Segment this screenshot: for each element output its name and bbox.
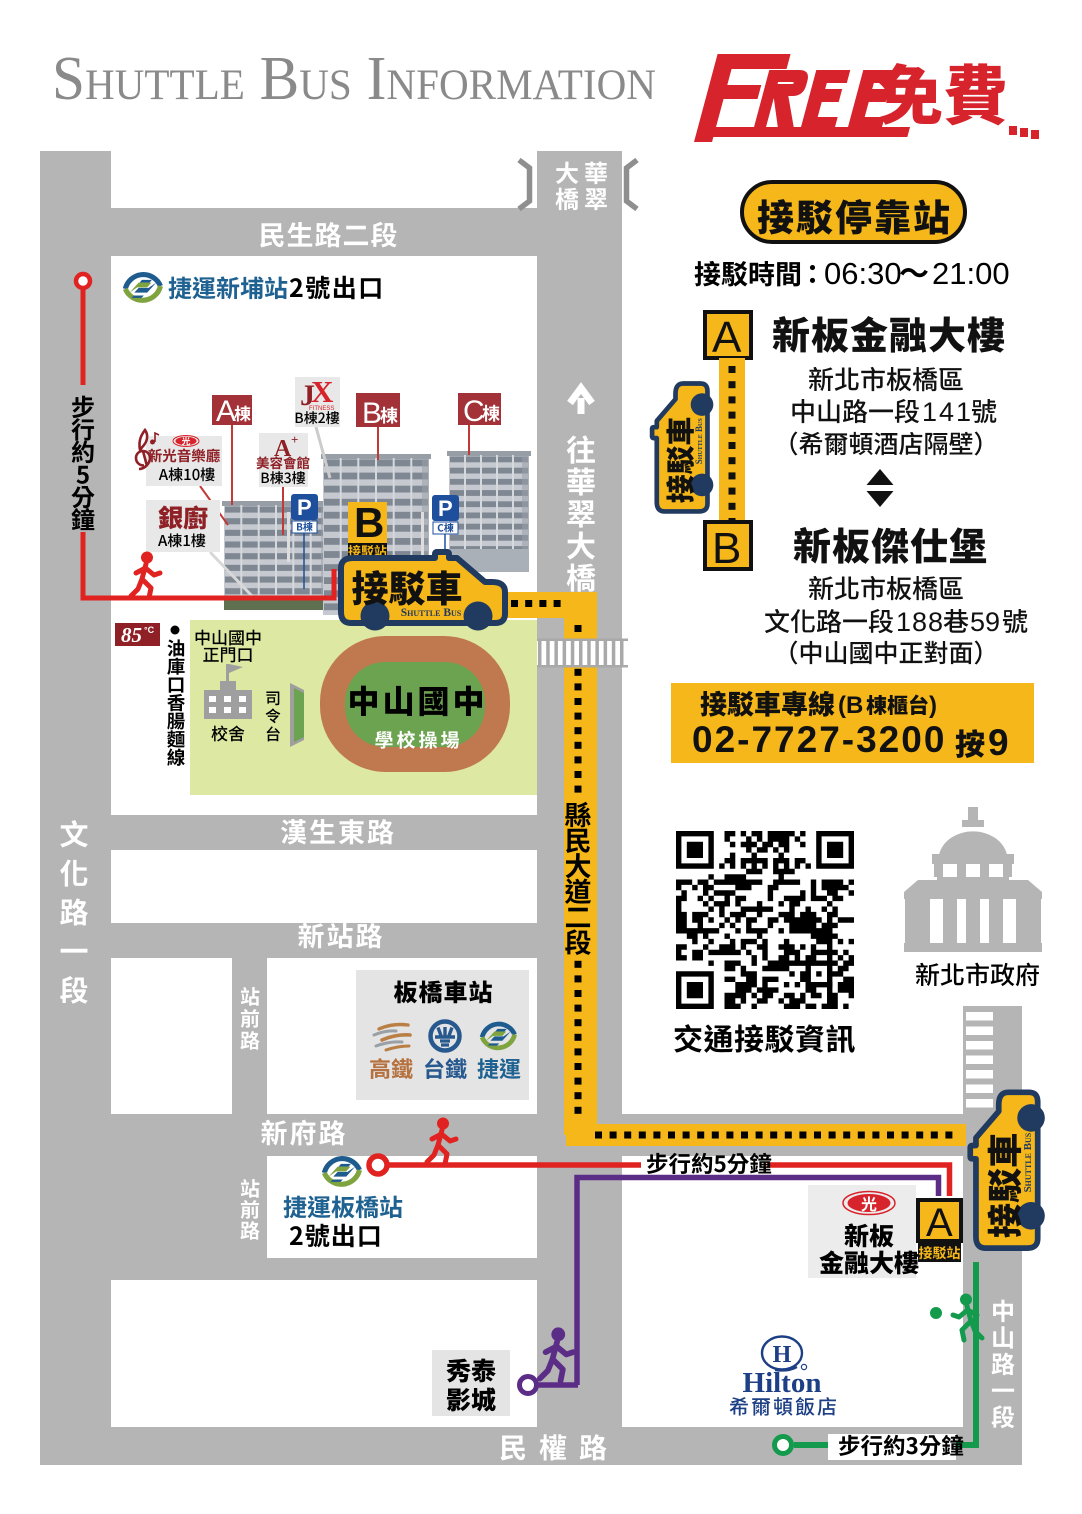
svg-text:B: B: [712, 524, 741, 573]
svg-text:188: 188: [896, 607, 944, 637]
svg-text:85: 85: [121, 623, 142, 647]
svg-text:FITNESS: FITNESS: [309, 406, 334, 412]
svg-text:59: 59: [970, 607, 1000, 637]
svg-text:(B: (B: [838, 692, 863, 719]
svg-text:02-7727-3200: 02-7727-3200: [692, 719, 946, 760]
svg-text:H: H: [773, 1342, 792, 1368]
svg-text:A: A: [712, 313, 742, 362]
svg-text:Shuttle Bus Information: Shuttle Bus Information: [52, 45, 656, 113]
svg-text:9: 9: [988, 722, 1009, 763]
svg-text:B: B: [354, 499, 384, 546]
svg-text:+: +: [291, 432, 298, 447]
svg-text:C: C: [463, 395, 485, 428]
svg-text:06:30: 06:30: [824, 256, 902, 291]
svg-text:P: P: [438, 496, 453, 521]
svg-text:B: B: [362, 397, 382, 430]
svg-text:A: A: [216, 395, 236, 428]
svg-text:21:00: 21:00: [932, 256, 1010, 291]
svg-text:141: 141: [922, 397, 973, 427]
svg-text:A: A: [926, 1201, 953, 1245]
svg-text:Hilton: Hilton: [743, 1367, 822, 1399]
svg-text:): ): [929, 692, 937, 719]
svg-text:P: P: [297, 495, 312, 520]
svg-text:°C: °C: [144, 625, 155, 635]
svg-text:X: X: [311, 374, 334, 409]
